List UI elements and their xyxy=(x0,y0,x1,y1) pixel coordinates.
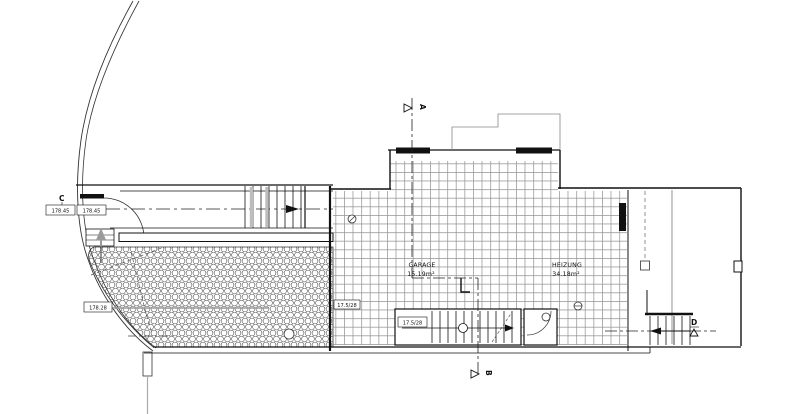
fixture-symbol xyxy=(574,302,582,310)
retaining-wall-band xyxy=(119,233,333,242)
hex-paving-area: 178.28 xyxy=(84,247,333,347)
room-name: HEIZUNG xyxy=(552,262,582,269)
section-label-a: A xyxy=(418,104,427,110)
triangle-icon xyxy=(690,329,698,336)
column xyxy=(641,261,650,270)
boundary-post xyxy=(143,352,152,376)
section-label-c: C xyxy=(59,194,65,203)
side-room xyxy=(524,309,557,345)
section-marker-d: D xyxy=(690,318,699,336)
door-lintel xyxy=(80,194,104,199)
elevation-tag: 17.5/28 xyxy=(337,303,357,309)
section-marker-b: B xyxy=(471,370,493,378)
roof-overhang-outline xyxy=(452,114,560,150)
window xyxy=(396,148,430,154)
drain-symbol xyxy=(284,329,294,339)
corridor-stairs xyxy=(245,186,305,228)
direction-arrow-icon xyxy=(286,205,299,213)
stair-arrow-icon xyxy=(650,328,661,335)
elevation-tag: 178.45 xyxy=(83,209,101,215)
floor-plan-drawing: C 178.45 178.45 178.28 xyxy=(0,0,794,414)
window xyxy=(516,148,552,154)
room-area: 15.19m² xyxy=(407,271,435,278)
fixture-symbol xyxy=(348,215,356,223)
room-name: GARAGE xyxy=(408,262,435,269)
floor-plan-canvas: C 178.45 178.45 178.28 xyxy=(0,0,794,414)
stair-tag: 17.5/28 xyxy=(403,321,423,327)
door-leaf xyxy=(619,203,626,231)
boundary-bottom xyxy=(143,352,152,414)
fixture-symbol xyxy=(542,313,550,321)
section-label-d: D xyxy=(691,318,697,327)
section-label-b: B xyxy=(484,370,493,376)
wall-niche xyxy=(734,261,742,272)
room-area: 34.18m² xyxy=(552,271,580,278)
elevation-tag: 178.28 xyxy=(89,306,107,312)
section-marker-a: A xyxy=(404,104,427,112)
interior-stair: 17.5/28 xyxy=(395,309,521,345)
elevation-tag: 178.45 xyxy=(52,209,70,215)
